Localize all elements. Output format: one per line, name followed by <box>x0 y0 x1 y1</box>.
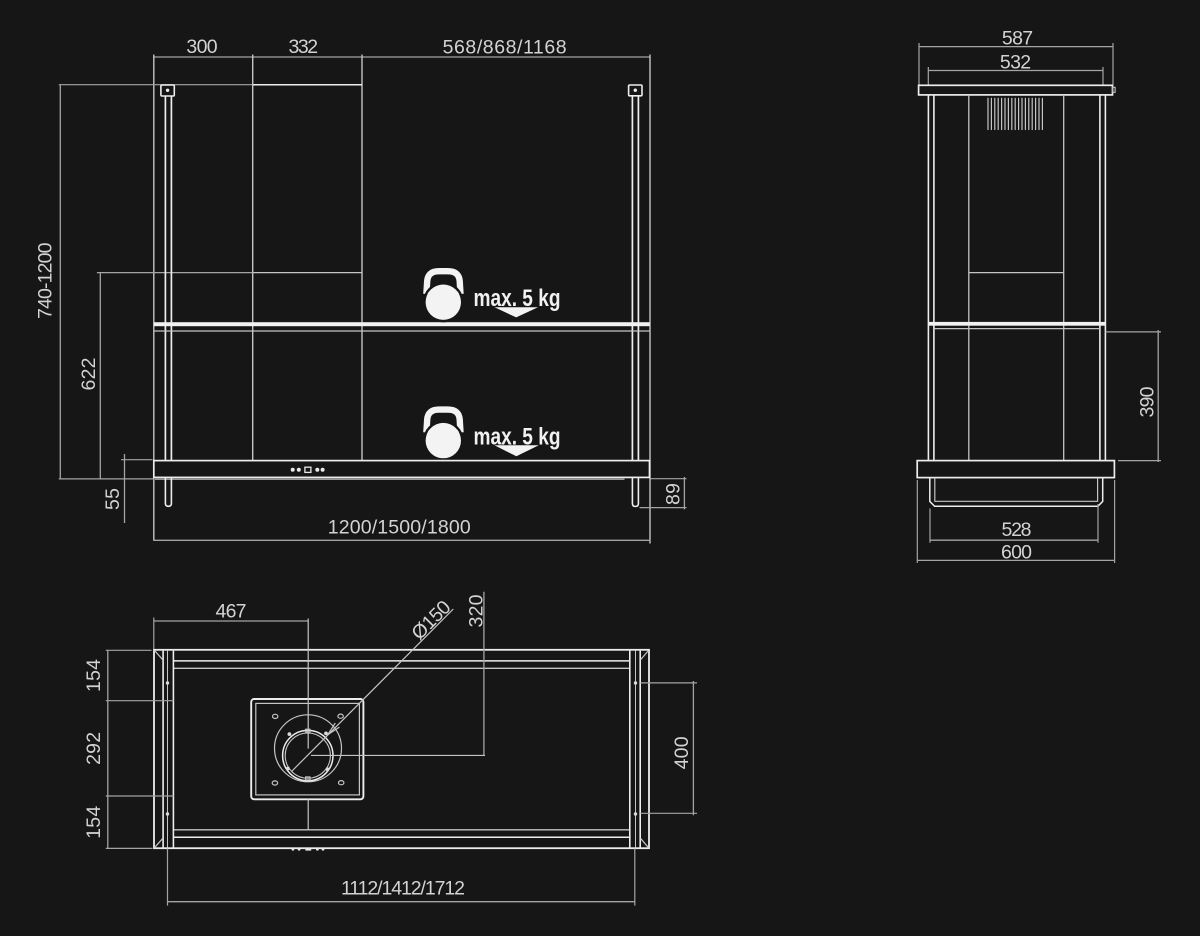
svg-text:89: 89 <box>663 483 685 505</box>
svg-text:740-1200: 740-1200 <box>35 242 57 319</box>
svg-text:532: 532 <box>1000 52 1031 74</box>
svg-text:154: 154 <box>83 659 105 692</box>
svg-text:587: 587 <box>1002 28 1033 50</box>
svg-text:467: 467 <box>216 600 247 622</box>
svg-text:300: 300 <box>186 36 217 58</box>
svg-text:400: 400 <box>671 736 693 769</box>
svg-text:332: 332 <box>289 36 319 58</box>
svg-text:1112/1412/1712: 1112/1412/1712 <box>341 878 465 900</box>
svg-text:154: 154 <box>83 806 105 839</box>
svg-text:390: 390 <box>1136 386 1158 417</box>
svg-text:622: 622 <box>78 358 100 391</box>
svg-text:55: 55 <box>102 488 124 510</box>
svg-text:1200/1500/1800: 1200/1500/1800 <box>328 516 471 538</box>
svg-text:292: 292 <box>83 732 105 765</box>
svg-text:600: 600 <box>1001 541 1032 563</box>
svg-text:528: 528 <box>1002 519 1032 541</box>
svg-text:568/868/1168: 568/868/1168 <box>443 36 567 58</box>
